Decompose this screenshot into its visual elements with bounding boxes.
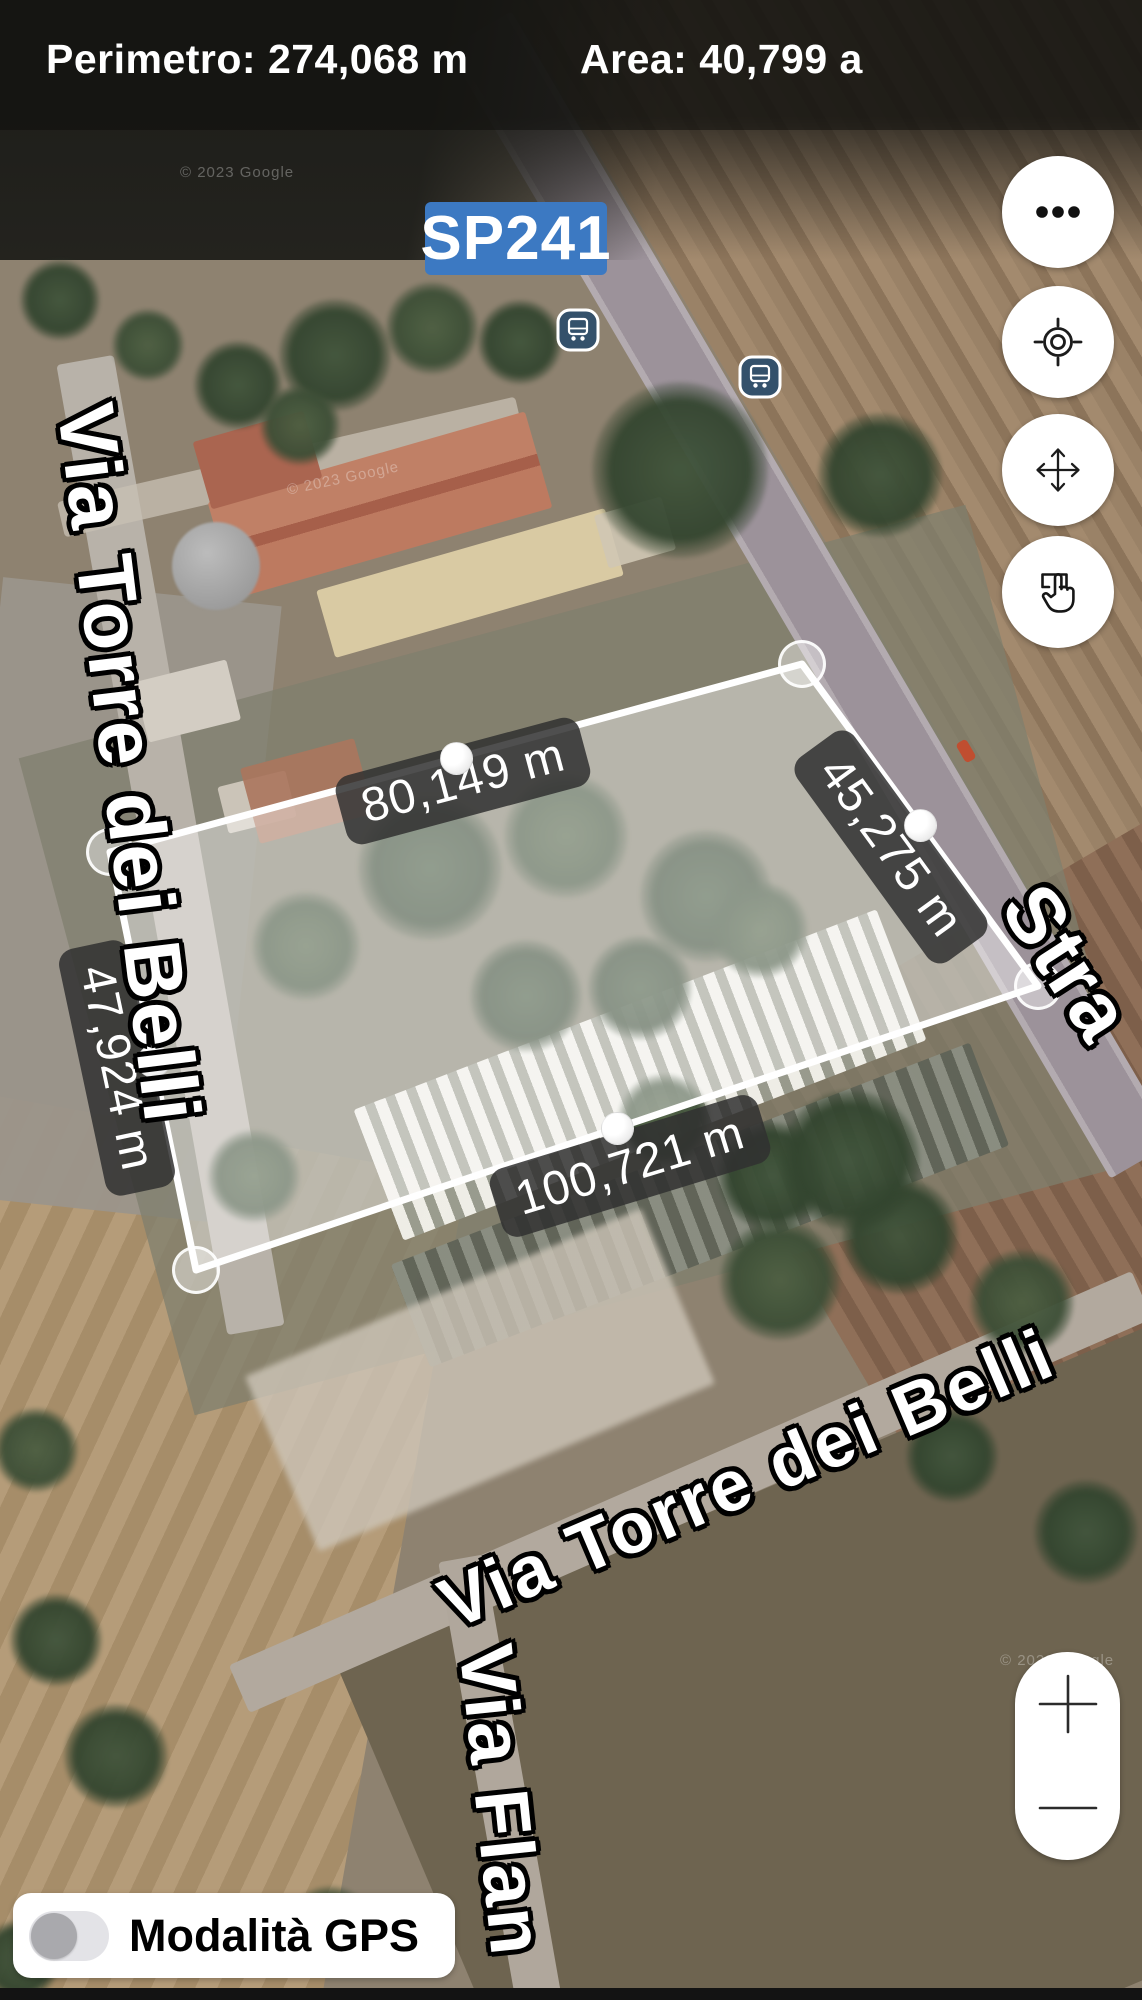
zoom-out-button[interactable] xyxy=(1015,1756,1120,1860)
stats-bar: Perimetro: 274,068 m Area: 40,799 a xyxy=(0,0,1142,130)
crosshair-target-icon xyxy=(1028,312,1088,372)
ellipsis-icon xyxy=(1028,182,1088,242)
locate-button[interactable] xyxy=(1002,286,1114,398)
vertex-handle-top-right[interactable] xyxy=(778,640,826,688)
tap-measure-button[interactable] xyxy=(1002,536,1114,648)
midpoint-handle-bottom[interactable] xyxy=(601,1112,634,1145)
area-value: Area: 40,799 a xyxy=(580,36,863,83)
route-badge-sp241: SP241 xyxy=(425,202,607,275)
tap-hand-icon xyxy=(1028,562,1088,622)
zoom-in-button[interactable] xyxy=(1015,1652,1120,1756)
gps-mode-control: Modalità GPS xyxy=(13,1893,455,1978)
gps-toggle-label: Modalità GPS xyxy=(129,1910,419,1962)
move-arrows-icon xyxy=(1028,440,1088,500)
bus-stop-icon[interactable] xyxy=(738,355,782,399)
midpoint-handle-right[interactable] xyxy=(904,809,937,842)
bus-stop-icon[interactable] xyxy=(556,308,600,352)
perimeter-value: Perimetro: 274,068 m xyxy=(46,36,469,83)
midpoint-handle-top[interactable] xyxy=(440,742,473,775)
minus-icon xyxy=(1038,1778,1098,1838)
zoom-control xyxy=(1015,1652,1120,1860)
bottom-attribution-strip xyxy=(0,1988,1142,2000)
vertex-handle-bottom[interactable] xyxy=(172,1246,220,1294)
more-options-button[interactable] xyxy=(1002,156,1114,268)
map-app-screen: © 2023 Google © 2023 Google © 2023 Googl… xyxy=(0,0,1142,2000)
toggle-knob xyxy=(31,1913,77,1959)
plus-icon xyxy=(1038,1674,1098,1734)
pan-move-button[interactable] xyxy=(1002,414,1114,526)
gps-toggle-switch[interactable] xyxy=(29,1911,109,1961)
